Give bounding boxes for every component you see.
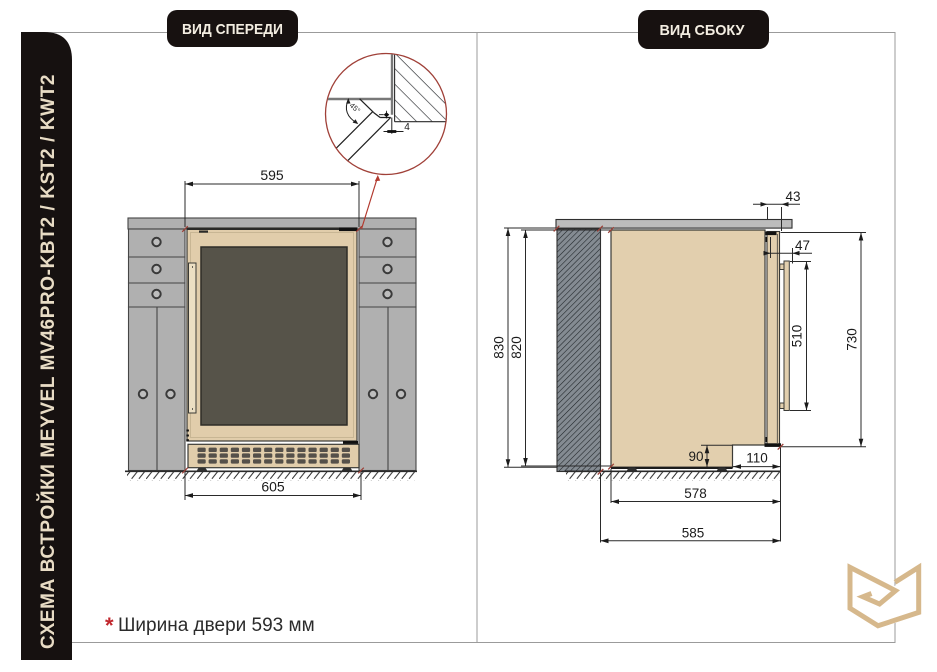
svg-text:*: * [105, 613, 114, 638]
svg-text:820: 820 [509, 336, 524, 359]
svg-text:830: 830 [492, 336, 507, 359]
svg-text:ВИД СБОКУ: ВИД СБОКУ [660, 22, 746, 39]
svg-text:47: 47 [795, 238, 810, 253]
svg-text:585: 585 [682, 526, 705, 541]
svg-text:43: 43 [785, 189, 800, 204]
svg-text:90: 90 [688, 449, 703, 464]
svg-text:605: 605 [261, 479, 285, 495]
svg-text:110: 110 [746, 451, 768, 466]
svg-text:578: 578 [684, 486, 707, 501]
svg-text:СХЕМА ВСТРОЙКИ MEYVEL MV46PRO-: СХЕМА ВСТРОЙКИ MEYVEL MV46PRO-KBT2 / KST… [37, 74, 59, 649]
svg-text:595: 595 [260, 167, 284, 183]
svg-text:ВИД СПЕРЕДИ: ВИД СПЕРЕДИ [182, 21, 283, 38]
svg-text:4: 4 [404, 122, 410, 133]
svg-text:510: 510 [790, 325, 805, 348]
svg-text:Ширина двери 593 мм: Ширина двери 593 мм [118, 615, 315, 636]
svg-text:730: 730 [845, 328, 860, 351]
